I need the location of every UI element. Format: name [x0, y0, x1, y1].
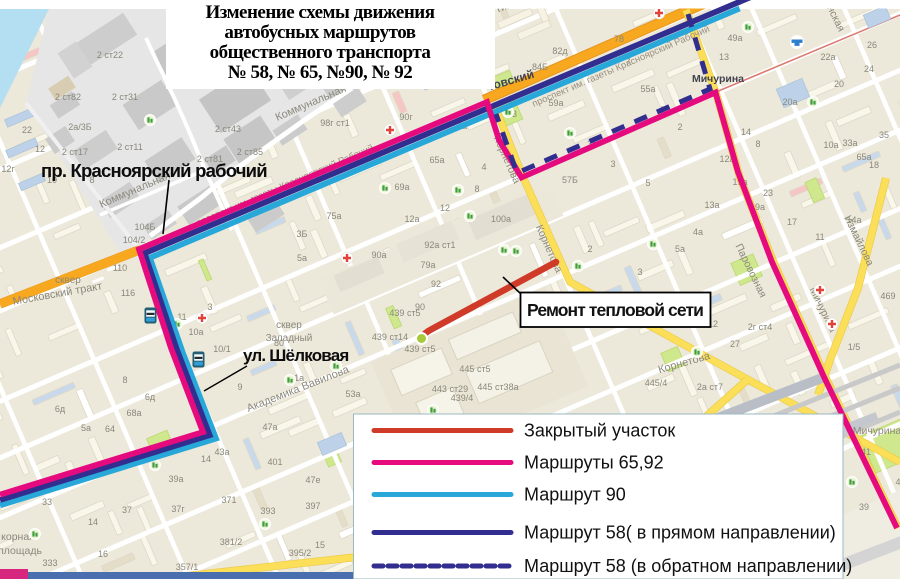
svg-text:49а: 49а: [727, 33, 742, 43]
svg-text:6д: 6д: [55, 404, 66, 414]
svg-text:23: 23: [763, 188, 773, 198]
svg-text:2 ст43: 2 ст43: [215, 124, 241, 134]
svg-text:10а: 10а: [188, 327, 203, 337]
svg-text:автобусных маршрутов: автобусных маршрутов: [224, 22, 415, 43]
svg-text:3Б: 3Б: [297, 229, 308, 239]
svg-text:393: 393: [260, 506, 275, 516]
svg-text:Мичурина: Мичурина: [853, 425, 900, 437]
svg-text:Закрытый участок: Закрытый участок: [524, 421, 675, 441]
svg-text:2 ст82: 2 ст82: [55, 92, 81, 102]
svg-text:90г: 90г: [399, 112, 413, 122]
svg-text:82д: 82д: [552, 46, 568, 56]
svg-text:Маршрут 58( в прямом направлен: Маршрут 58( в прямом направлении): [524, 523, 836, 543]
svg-text:57Б: 57Б: [562, 175, 578, 185]
svg-text:Мичурина: Мичурина: [692, 73, 744, 85]
svg-text:4а: 4а: [693, 227, 703, 237]
svg-text:18: 18: [869, 160, 879, 170]
svg-text:площадь: площадь: [0, 545, 42, 557]
svg-text:5а: 5а: [81, 423, 91, 433]
svg-text:43а: 43а: [214, 447, 229, 457]
svg-text:27: 27: [730, 339, 740, 349]
svg-text:10/1: 10/1: [213, 344, 231, 354]
svg-text:12: 12: [440, 203, 450, 213]
svg-text:20а: 20а: [782, 97, 797, 107]
svg-text:14: 14: [741, 127, 751, 137]
svg-text:12: 12: [35, 144, 45, 154]
svg-text:26: 26: [867, 40, 877, 50]
svg-text:сквер: сквер: [276, 320, 302, 331]
svg-text:371: 371: [221, 495, 236, 505]
svg-text:16: 16: [98, 549, 108, 559]
svg-text:2: 2: [677, 122, 682, 132]
svg-text:2г ст4: 2г ст4: [748, 322, 772, 332]
svg-text:78: 78: [614, 34, 624, 44]
svg-text:12а: 12а: [404, 214, 419, 224]
svg-text:22: 22: [22, 125, 32, 135]
svg-text:33а: 33а: [842, 138, 857, 148]
svg-text:445/4: 445/4: [645, 378, 668, 388]
svg-text:9а: 9а: [755, 202, 765, 212]
svg-text:12г: 12г: [1, 164, 15, 174]
svg-text:439 ст5: 439 ст5: [389, 308, 420, 318]
svg-text:68а: 68а: [126, 408, 141, 418]
svg-text:381/2: 381/2: [220, 537, 243, 547]
svg-text:14: 14: [201, 454, 211, 464]
svg-text:2 ст17: 2 ст17: [62, 147, 88, 157]
svg-text:пр. Красноярский рабочий: пр. Красноярский рабочий: [41, 160, 267, 181]
svg-text:8: 8: [755, 139, 760, 149]
svg-text:104Б: 104Б: [135, 222, 156, 232]
svg-text:5а: 5а: [675, 244, 685, 254]
svg-text:Маршруты 65,92: Маршруты 65,92: [524, 453, 664, 473]
svg-text:47е: 47е: [305, 475, 320, 485]
svg-text:14а: 14а: [846, 215, 861, 225]
svg-text:110: 110: [113, 263, 127, 273]
svg-text:90а: 90а: [371, 250, 386, 260]
svg-text:2: 2: [587, 244, 592, 254]
svg-text:104/2: 104/2: [123, 235, 146, 245]
svg-text:13а: 13а: [704, 200, 719, 210]
svg-text:8: 8: [122, 375, 127, 385]
svg-text:55а: 55а: [640, 84, 655, 94]
svg-text:39: 39: [859, 502, 869, 512]
svg-text:64: 64: [105, 424, 115, 434]
svg-text:Маршрут 58 (в обратном направл: Маршрут 58 (в обратном направлении): [524, 556, 852, 576]
svg-text:2 ст22: 2 ст22: [97, 50, 123, 60]
svg-text:8: 8: [474, 184, 479, 194]
svg-text:35: 35: [879, 130, 889, 140]
svg-text:439/4: 439/4: [451, 393, 474, 403]
svg-text:5а: 5а: [297, 253, 307, 263]
svg-text:2 ст31: 2 ст31: [112, 92, 138, 102]
svg-text:Маршрут 90: Маршрут 90: [524, 485, 626, 505]
svg-text:2 ст85: 2 ст85: [237, 147, 263, 157]
svg-text:24: 24: [864, 64, 874, 74]
svg-text:10а: 10а: [823, 140, 838, 150]
svg-text:65а: 65а: [429, 155, 444, 165]
svg-text:333: 333: [42, 558, 57, 568]
svg-text:357/1: 357/1: [176, 562, 199, 572]
svg-text:Западный: Западный: [266, 333, 313, 344]
svg-text:Изменение схемы движения: Изменение схемы движения: [205, 2, 434, 23]
svg-text:445 ст5: 445 ст5: [459, 364, 490, 374]
svg-text:445 ст38а: 445 ст38а: [477, 382, 518, 392]
svg-text:2 ст11: 2 ст11: [117, 142, 142, 152]
svg-text:53а: 53а: [345, 389, 360, 399]
svg-text:47а: 47а: [262, 422, 277, 432]
svg-text:100а: 100а: [491, 214, 511, 224]
svg-text:469: 469: [880, 291, 895, 301]
svg-text:79а: 79а: [420, 260, 435, 270]
svg-text:98г ст1: 98г ст1: [320, 118, 349, 128]
svg-text:4: 4: [895, 477, 900, 487]
svg-text:6д: 6д: [145, 392, 156, 402]
svg-text:39а: 39а: [168, 474, 183, 484]
svg-text:3: 3: [207, 302, 212, 312]
svg-text:33: 33: [42, 497, 52, 507]
svg-text:3: 3: [637, 267, 642, 277]
svg-text:37: 37: [122, 505, 132, 515]
svg-text:17: 17: [787, 217, 797, 227]
svg-text:Ремонт тепловой сети: Ремонт тепловой сети: [527, 300, 703, 320]
svg-text:11: 11: [815, 232, 824, 242]
svg-text:116: 116: [121, 288, 135, 298]
svg-text:4: 4: [481, 162, 486, 172]
svg-text:1/5: 1/5: [848, 342, 861, 352]
svg-text:2а ст7: 2а ст7: [697, 382, 723, 392]
svg-text:443 ст29: 443 ст29: [432, 384, 468, 394]
svg-text:395/2: 395/2: [289, 548, 312, 558]
svg-text:439 ст14: 439 ст14: [372, 332, 408, 342]
svg-text:75а: 75а: [326, 211, 341, 221]
svg-text:92а ст1: 92а ст1: [424, 240, 455, 250]
svg-text:15: 15: [315, 540, 325, 550]
svg-text:84Б: 84Б: [532, 62, 548, 72]
svg-text:2а/3Б: 2а/3Б: [68, 122, 92, 132]
svg-text:3: 3: [610, 159, 615, 169]
svg-text:22а: 22а: [820, 52, 835, 62]
svg-text:69а: 69а: [394, 182, 409, 192]
svg-text:59а: 59а: [548, 98, 563, 108]
svg-text:401: 401: [267, 457, 282, 467]
svg-text:92: 92: [431, 279, 441, 289]
svg-text:397: 397: [305, 501, 320, 511]
svg-text:37г: 37г: [171, 504, 185, 514]
svg-text:№ 58, № 65, №90, № 92: № 58, № 65, №90, № 92: [228, 62, 413, 83]
svg-text:5: 5: [645, 178, 650, 188]
svg-text:439 ст5: 439 ст5: [404, 344, 435, 354]
svg-text:20: 20: [834, 79, 844, 89]
svg-text:13: 13: [719, 52, 729, 62]
svg-text:общественного транспорта: общественного транспорта: [210, 42, 432, 63]
svg-text:9: 9: [237, 382, 242, 392]
svg-text:ул. Шёлковая: ул. Шёлковая: [243, 346, 348, 365]
svg-text:14: 14: [88, 517, 98, 527]
